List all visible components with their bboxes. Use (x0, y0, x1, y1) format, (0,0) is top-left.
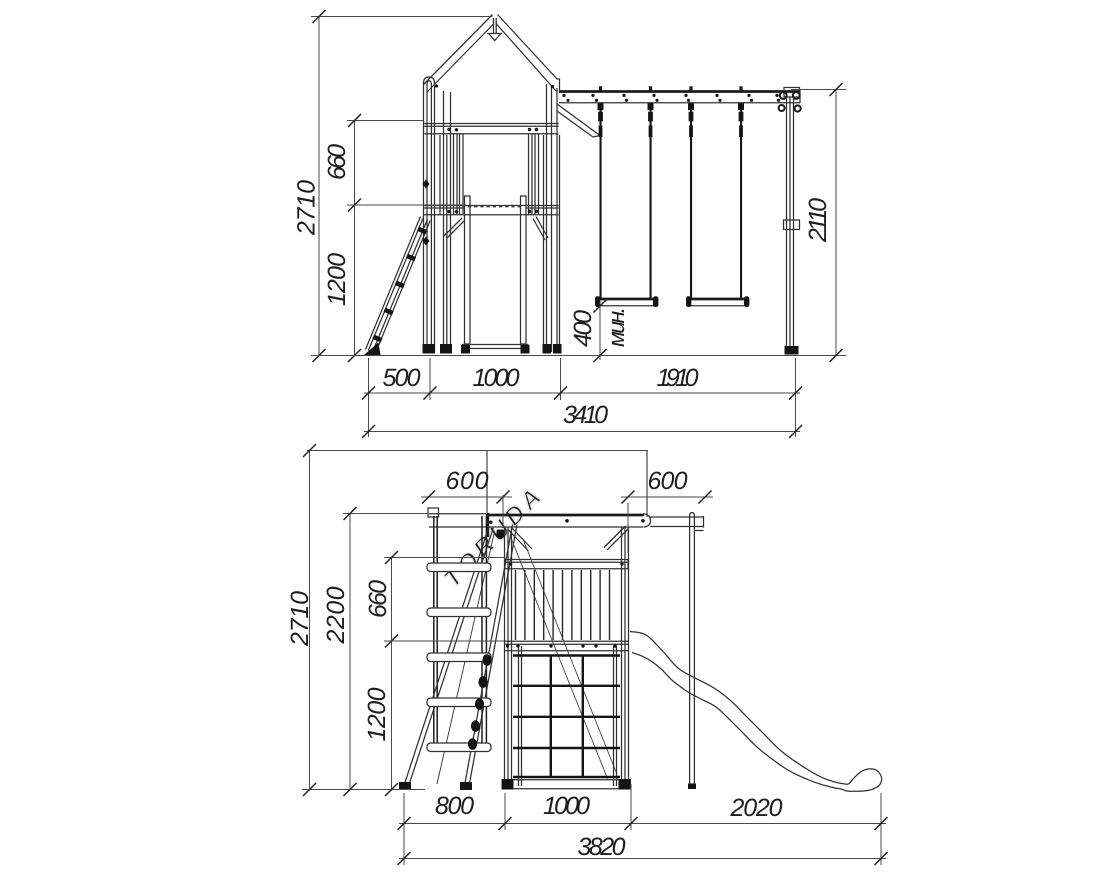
svg-text:мин.: мин. (603, 307, 629, 347)
svg-text:1910: 1910 (657, 364, 699, 392)
svg-text:400: 400 (569, 310, 597, 347)
svg-text:1000: 1000 (473, 364, 520, 392)
svg-text:800: 800 (435, 792, 474, 820)
svg-text:2710: 2710 (293, 180, 321, 236)
svg-text:1200: 1200 (323, 253, 351, 306)
svg-text:660: 660 (364, 580, 392, 618)
svg-text:500: 500 (383, 364, 421, 392)
svg-text:2710: 2710 (286, 591, 314, 647)
svg-text:2110: 2110 (804, 198, 832, 243)
svg-text:2200: 2200 (322, 586, 350, 644)
svg-text:3820: 3820 (578, 833, 626, 861)
svg-text:3410: 3410 (563, 401, 608, 429)
svg-text:1200: 1200 (363, 687, 391, 741)
svg-text:600: 600 (648, 467, 688, 495)
svg-text:2020: 2020 (730, 794, 783, 822)
svg-text:600: 600 (446, 467, 489, 495)
svg-text:1000: 1000 (543, 792, 590, 820)
svg-text:660: 660 (323, 144, 351, 180)
